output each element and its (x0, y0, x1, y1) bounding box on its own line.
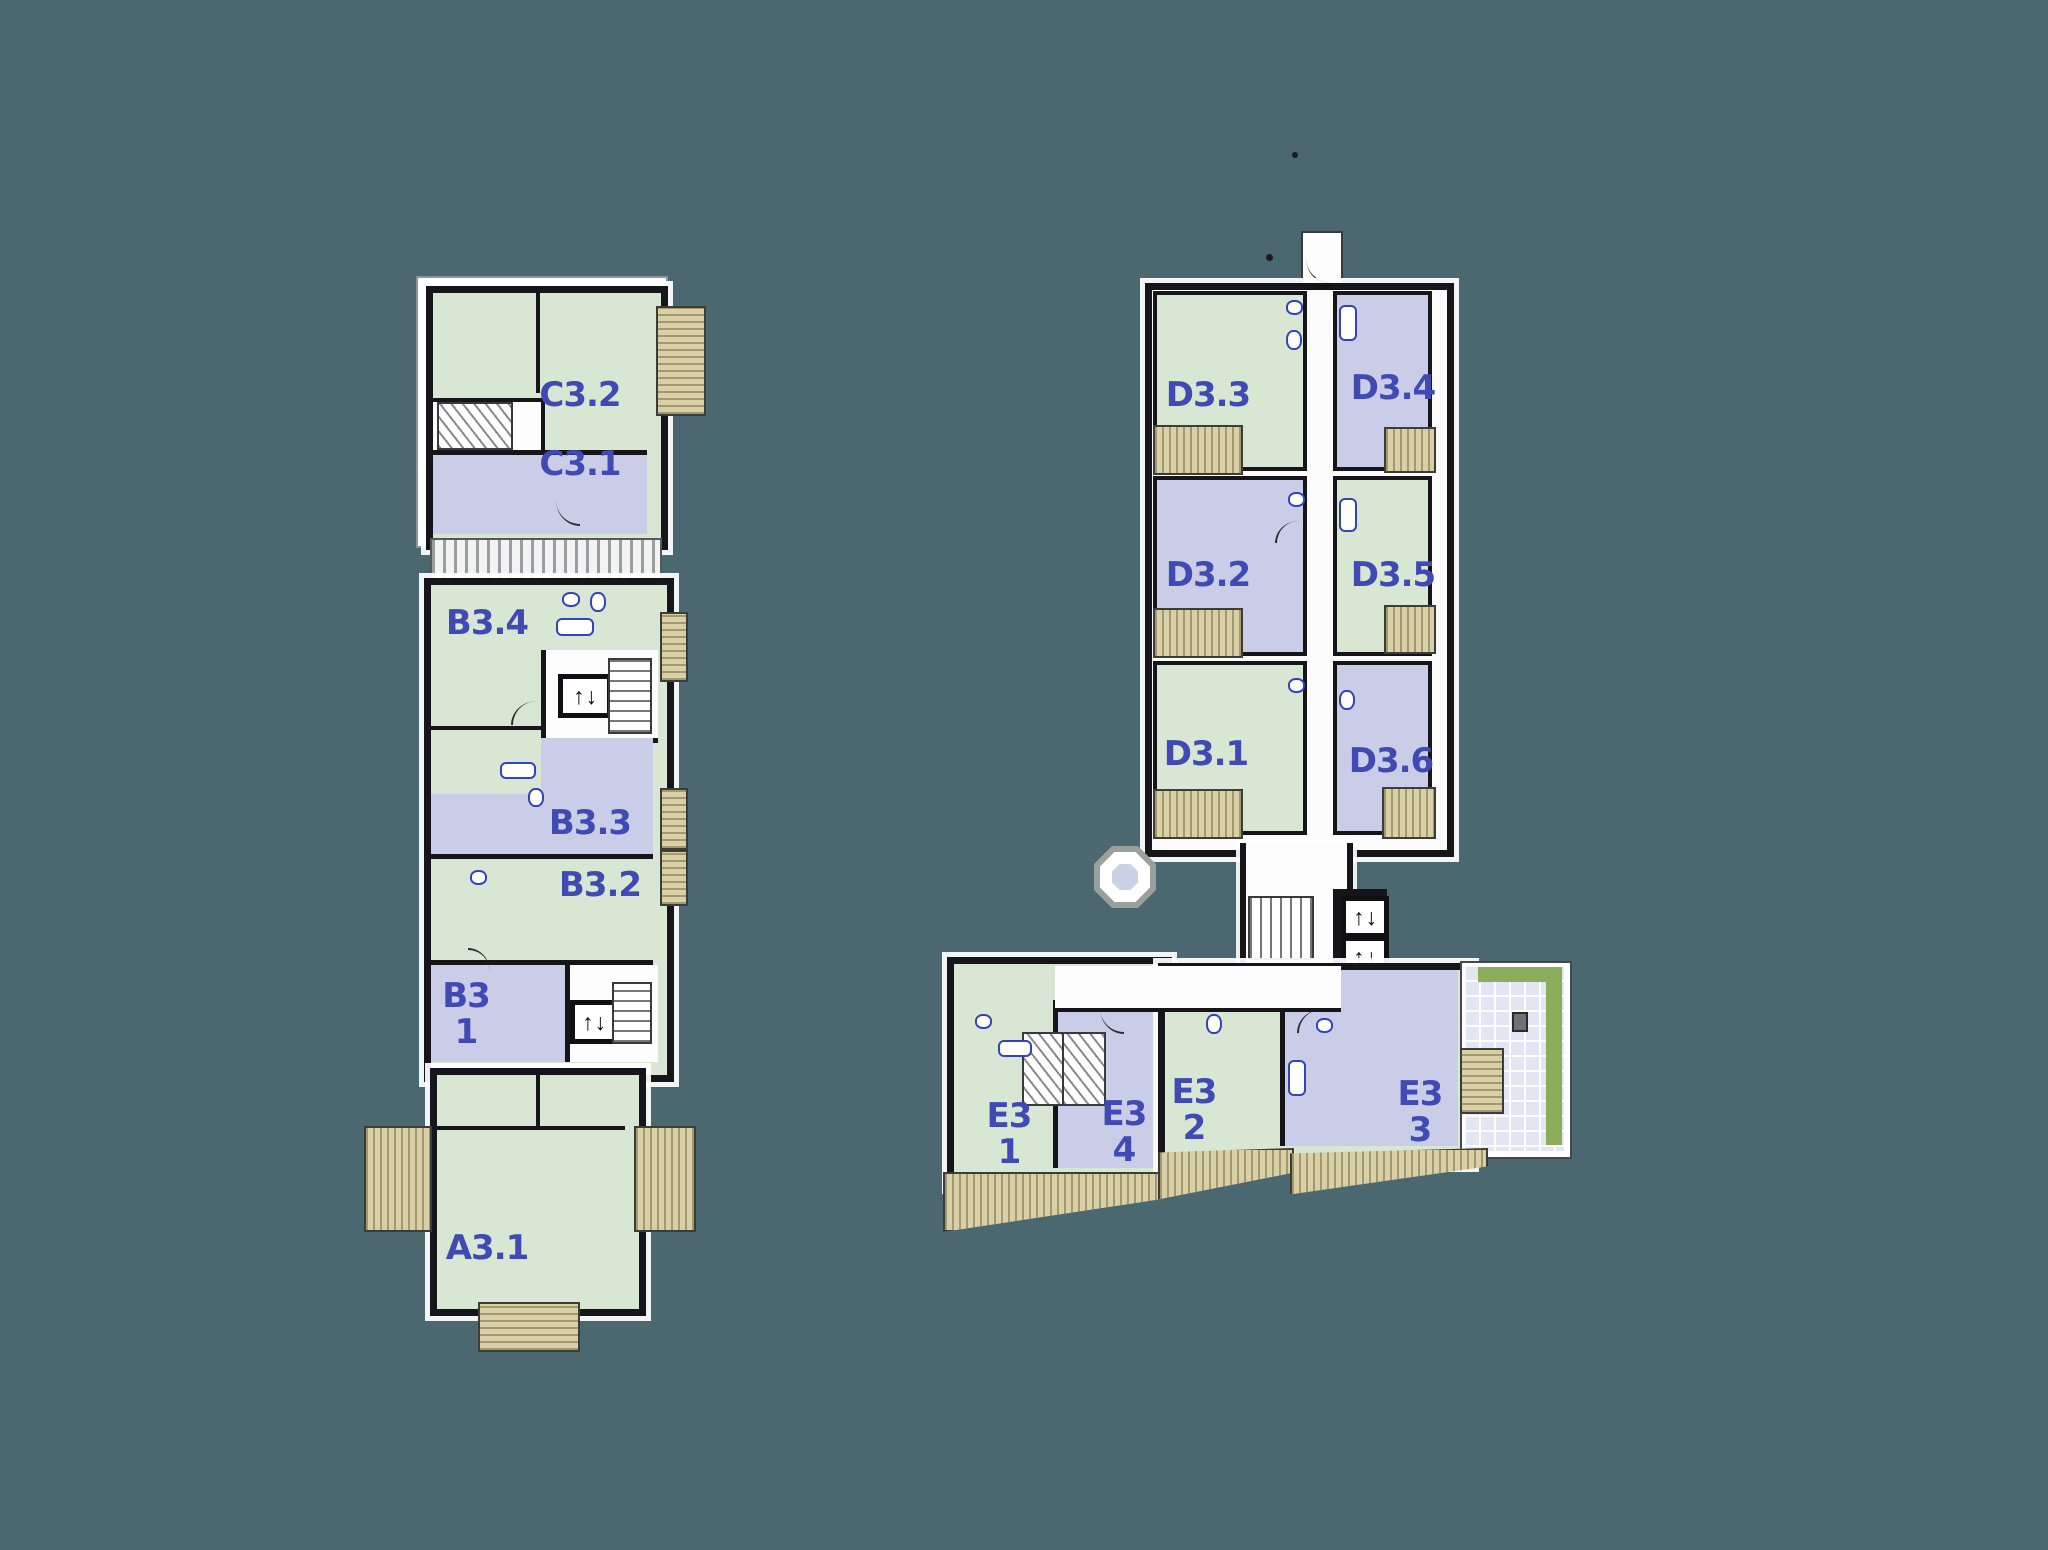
sink-icon (1286, 300, 1303, 315)
unit-label-d35: D3.5 (1338, 557, 1448, 597)
elevator-lower: ↑↓ (570, 1000, 618, 1044)
balcony-d35 (1384, 605, 1436, 654)
unit-label-e32-line2: 2 (1144, 1110, 1244, 1146)
unit-label-e32: E3 2 (1144, 1074, 1244, 1150)
b34-partition (431, 726, 541, 730)
balcony-d32 (1153, 608, 1243, 658)
bathtub-icon (556, 618, 594, 636)
stem-stairs (1248, 896, 1314, 960)
balcony-e32 (1158, 1148, 1294, 1204)
sink-icon (562, 592, 580, 607)
elevator-de-1: ↑↓ (1341, 896, 1389, 938)
elevator-up-icon: ↑ (582, 1011, 594, 1034)
unit-label-b31: B3 1 (416, 978, 516, 1054)
terrace-planting-east (1546, 967, 1562, 1145)
unit-label-d31: D3.1 (1151, 736, 1261, 776)
balcony-b33 (660, 788, 688, 850)
map-dot (1292, 152, 1298, 158)
c-winder-stairs (437, 402, 513, 450)
elevator-down-icon: ↓ (586, 685, 598, 708)
unit-label-b31-line2: 1 (416, 1014, 516, 1050)
toilet-icon (528, 788, 544, 807)
unit-label-b32: B3.2 (545, 867, 655, 907)
walkway-bridge (430, 538, 662, 582)
unit-label-e32-line1: E3 (1144, 1074, 1244, 1110)
elevator-down-icon: ↓ (1366, 906, 1378, 929)
unit-label-c31: C3.1 (525, 446, 635, 486)
toilet-icon (1206, 1014, 1222, 1034)
map-dot (1266, 254, 1273, 261)
bathtub-icon (1288, 1060, 1306, 1096)
balcony-a31-east (634, 1126, 696, 1232)
bathtub-icon (1339, 498, 1357, 532)
unit-label-c32: C3.2 (525, 377, 635, 417)
e34-winder-stairs (1062, 1032, 1106, 1106)
unit-label-e33-line1: E3 (1370, 1076, 1470, 1112)
unit-label-b31-line1: B3 (416, 978, 516, 1014)
balcony-d33 (1153, 425, 1243, 475)
unit-label-e31: E3 1 (959, 1098, 1059, 1174)
sink-icon (1288, 492, 1305, 507)
tower-marker-core (1112, 864, 1138, 890)
unit-label-e33: E3 3 (1370, 1076, 1470, 1152)
balcony-b34 (660, 612, 688, 682)
unit-label-b33: B3.3 (535, 805, 645, 845)
unit-label-e31-line1: E3 (959, 1098, 1059, 1134)
e-wing-corridor (1055, 966, 1341, 1012)
elevator-up-icon: ↑ (573, 685, 585, 708)
elevator-down-icon: ↓ (595, 1011, 607, 1034)
balcony-d31 (1153, 789, 1243, 839)
b-stairs-lower (612, 982, 652, 1044)
balcony-a31-south (478, 1302, 580, 1352)
unit-label-e31-line2: 1 (959, 1134, 1059, 1170)
a-partition-h (437, 1126, 625, 1130)
balcony-e31-e34 (943, 1172, 1162, 1232)
toilet-icon (590, 592, 606, 612)
unit-b3-3[interactable] (431, 794, 541, 856)
unit-label-d32: D3.2 (1153, 557, 1263, 597)
unit-label-b34: B3.4 (432, 605, 542, 645)
unit-label-d33: D3.3 (1153, 377, 1263, 417)
terrace-deck (1460, 1048, 1504, 1114)
b-stairs-upper (608, 658, 652, 734)
unit-label-a31: A3.1 (432, 1230, 542, 1270)
elevator-up-icon: ↑ (1353, 906, 1365, 929)
balcony-b32 (660, 850, 688, 906)
bathtub-icon (1339, 305, 1357, 341)
toilet-icon (1339, 690, 1355, 710)
bathtub-icon (500, 762, 536, 779)
unit-label-d34: D3.4 (1338, 370, 1448, 410)
balcony-a31-west (364, 1126, 432, 1232)
toilet-icon (1286, 330, 1302, 350)
balcony-e33 (1290, 1148, 1488, 1202)
balcony-c32 (656, 306, 706, 416)
floorplan-canvas: C3.2 C3.1 ↑↓ ↑↓ B3.4 B3.3 B3.2 B3 (0, 0, 2048, 1550)
sink-icon (1288, 678, 1305, 693)
sink-icon (1316, 1018, 1333, 1033)
sink-icon (975, 1014, 992, 1029)
terrace-object (1512, 1012, 1528, 1032)
balcony-d34 (1384, 427, 1436, 473)
sink-icon (470, 870, 487, 885)
unit-label-d36: D3.6 (1336, 743, 1446, 783)
unit-label-e33-line2: 3 (1370, 1112, 1470, 1148)
balcony-d36 (1382, 787, 1436, 839)
elevator-upper: ↑↓ (558, 674, 612, 718)
a-partition-v (536, 1075, 540, 1130)
bathtub-icon (998, 1040, 1032, 1057)
